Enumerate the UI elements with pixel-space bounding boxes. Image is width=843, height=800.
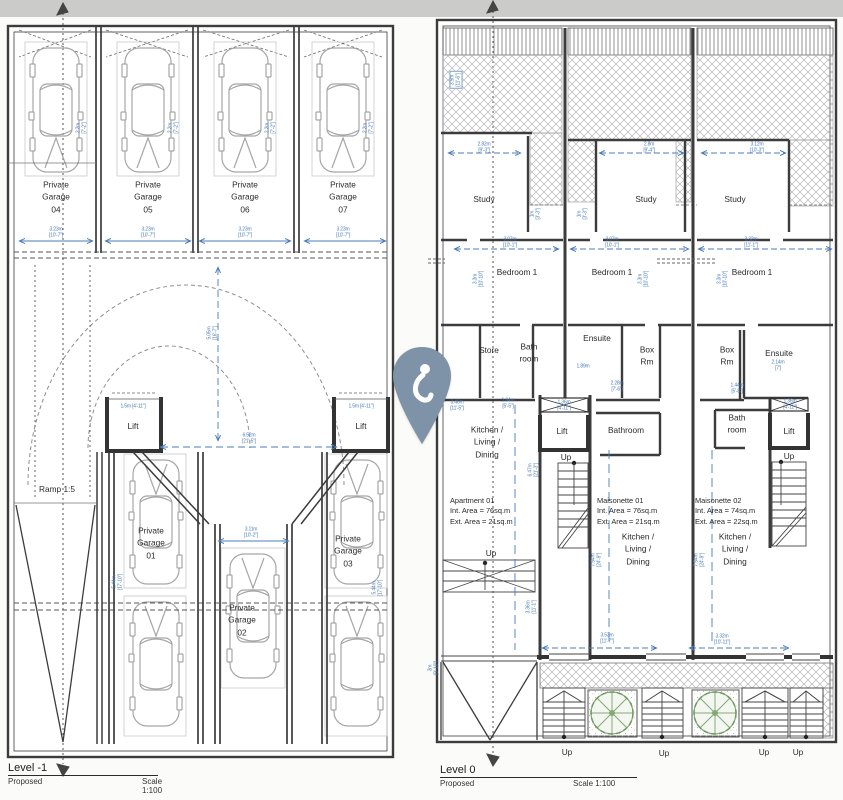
- plan-status: Proposed: [440, 779, 474, 788]
- level-minus1-title-block: Level -1 Proposed Scale 1:100: [8, 762, 158, 786]
- plan-title: Level 0: [440, 764, 637, 778]
- wall-hatch-band: [443, 28, 833, 55]
- level-0-title-block: Level 0 Proposed Scale 1:100: [440, 764, 637, 788]
- plan-status: Proposed: [8, 777, 42, 786]
- level-0-plan: [428, 1, 836, 766]
- location-pin-icon[interactable]: [390, 345, 454, 449]
- tree-icon: [694, 692, 736, 734]
- plan-title: Level -1: [8, 762, 158, 776]
- plan-scale: Scale 1:100: [142, 777, 162, 795]
- paving: [540, 663, 833, 688]
- tree-icon: [591, 692, 633, 734]
- level-minus1-plan: [8, 3, 393, 776]
- plan-scale: Scale 1:100: [573, 779, 615, 788]
- floorplan-page: Private Garage 04Private Garage 05Privat…: [0, 0, 843, 800]
